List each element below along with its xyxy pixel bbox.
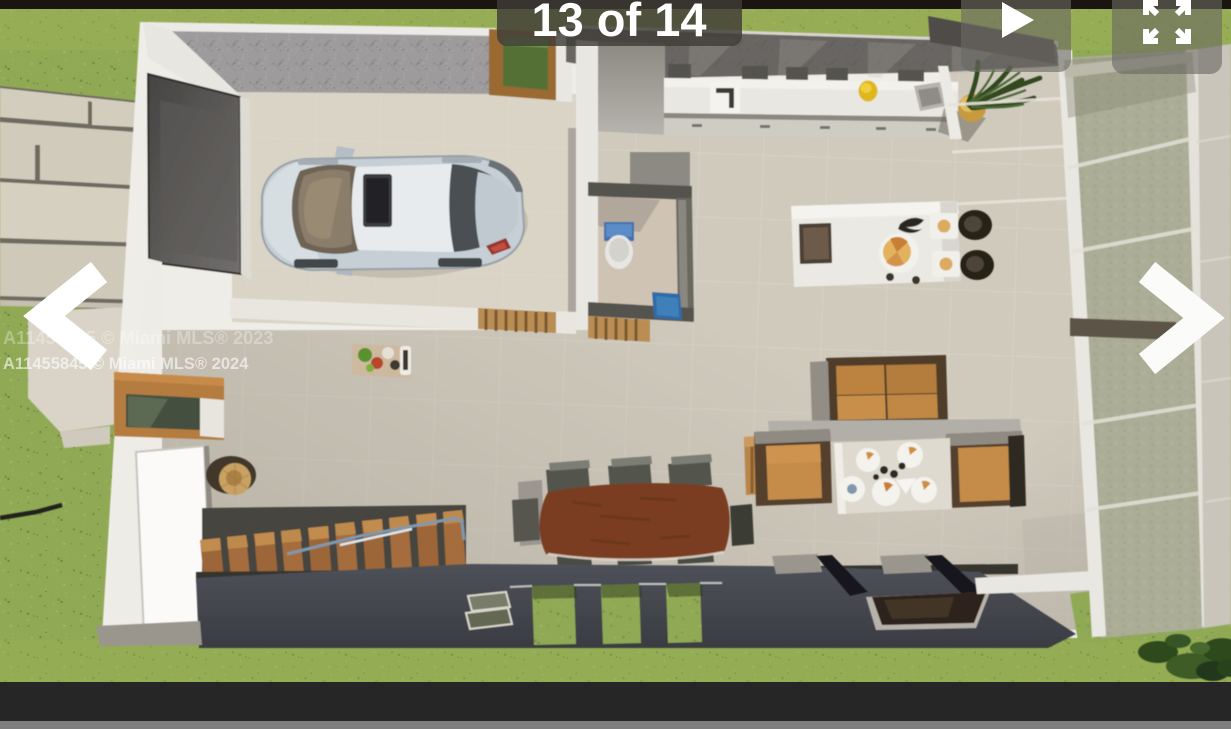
svg-text:13 of 14: 13 of 14: [531, 0, 706, 46]
svg-text:A11455845 © Miami MLS® 2024: A11455845 © Miami MLS® 2024: [3, 355, 249, 373]
svg-text:A11455845 © Miami MLS® 2023: A11455845 © Miami MLS® 2023: [3, 328, 273, 348]
